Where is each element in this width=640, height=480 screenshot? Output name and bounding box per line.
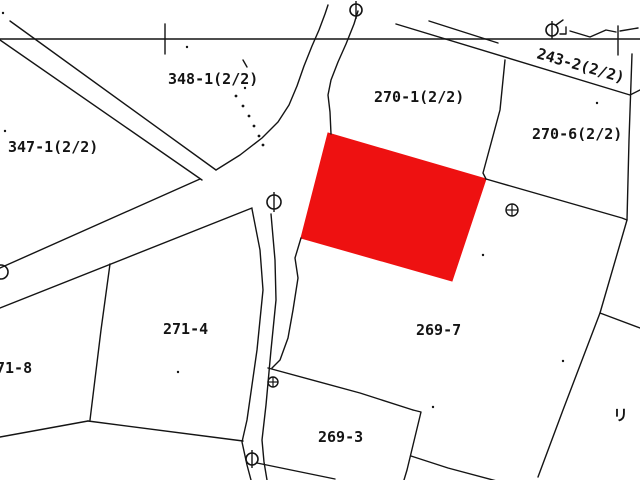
dotted-boundary-dot-4	[258, 135, 261, 138]
boundary-269-3-southeast	[411, 456, 508, 480]
parcel-label-269-3: 269-3	[318, 428, 363, 446]
highlighted-parcel[interactable]	[301, 133, 486, 281]
road-west-south-edge	[0, 208, 252, 308]
dotted-boundary-dot-3	[253, 125, 256, 128]
marker-flag	[556, 20, 563, 25]
boundary-270-1-east	[483, 60, 505, 179]
parcel-label-71-8: 71-8	[0, 359, 32, 377]
road-south-right-edge	[262, 214, 276, 480]
dotted-boundary-dot-1	[242, 105, 245, 108]
scan-speck-6	[596, 102, 598, 104]
road-west-north-edge	[0, 179, 200, 268]
road-north-right-edge	[328, 11, 358, 134]
edge-partial-glyph: リ	[613, 406, 628, 424]
dotted-boundary-dot-2	[248, 115, 251, 118]
dotted-boundary-dot-5	[262, 144, 265, 147]
boundary-269-3-east	[404, 410, 421, 480]
road-nw-south-edge	[0, 40, 202, 180]
parcel-label-269-7: 269-7	[416, 321, 461, 339]
parcel-boundaries	[0, 1, 640, 480]
dotted-boundary-dot-0	[235, 95, 238, 98]
boundary-243-2-lower	[396, 24, 640, 95]
map-linework: 348-1(2/2) 347-1(2/2) 270-1(2/2) 243-2(2…	[0, 0, 640, 480]
boundary-east-branch	[600, 313, 640, 328]
boundary-bottom-diagonal	[257, 463, 335, 479]
scan-speck-5	[482, 254, 484, 256]
parcel-label-347-1: 347-1(2/2)	[8, 138, 98, 156]
boundary-271-4-west	[90, 264, 110, 420]
road-south-left-edge	[242, 209, 263, 480]
parcel-label-270-1: 270-1(2/2)	[374, 88, 464, 106]
parcel-label-348-1: 348-1(2/2)	[168, 70, 258, 88]
scan-speck-7	[4, 130, 6, 132]
zigzag-left	[570, 30, 616, 37]
scan-speck-4	[432, 406, 434, 408]
tick-above-348	[243, 60, 247, 67]
zigzag-right	[620, 28, 638, 31]
cadastral-map: 348-1(2/2) 347-1(2/2) 270-1(2/2) 243-2(2…	[0, 0, 640, 480]
boundary-269-7-south	[268, 368, 413, 410]
scan-speck-8	[186, 46, 188, 48]
scan-speck-0	[2, 12, 4, 14]
boundary-271-4-south	[88, 421, 243, 441]
marker-bracket	[560, 27, 566, 34]
parcel-label-271-4: 271-4	[163, 320, 208, 338]
parcel-label-270-6: 270-6(2/2)	[532, 125, 622, 143]
boundary-71-8-south	[0, 421, 88, 437]
scan-speck-3	[562, 360, 564, 362]
scan-speck-2	[177, 371, 179, 373]
